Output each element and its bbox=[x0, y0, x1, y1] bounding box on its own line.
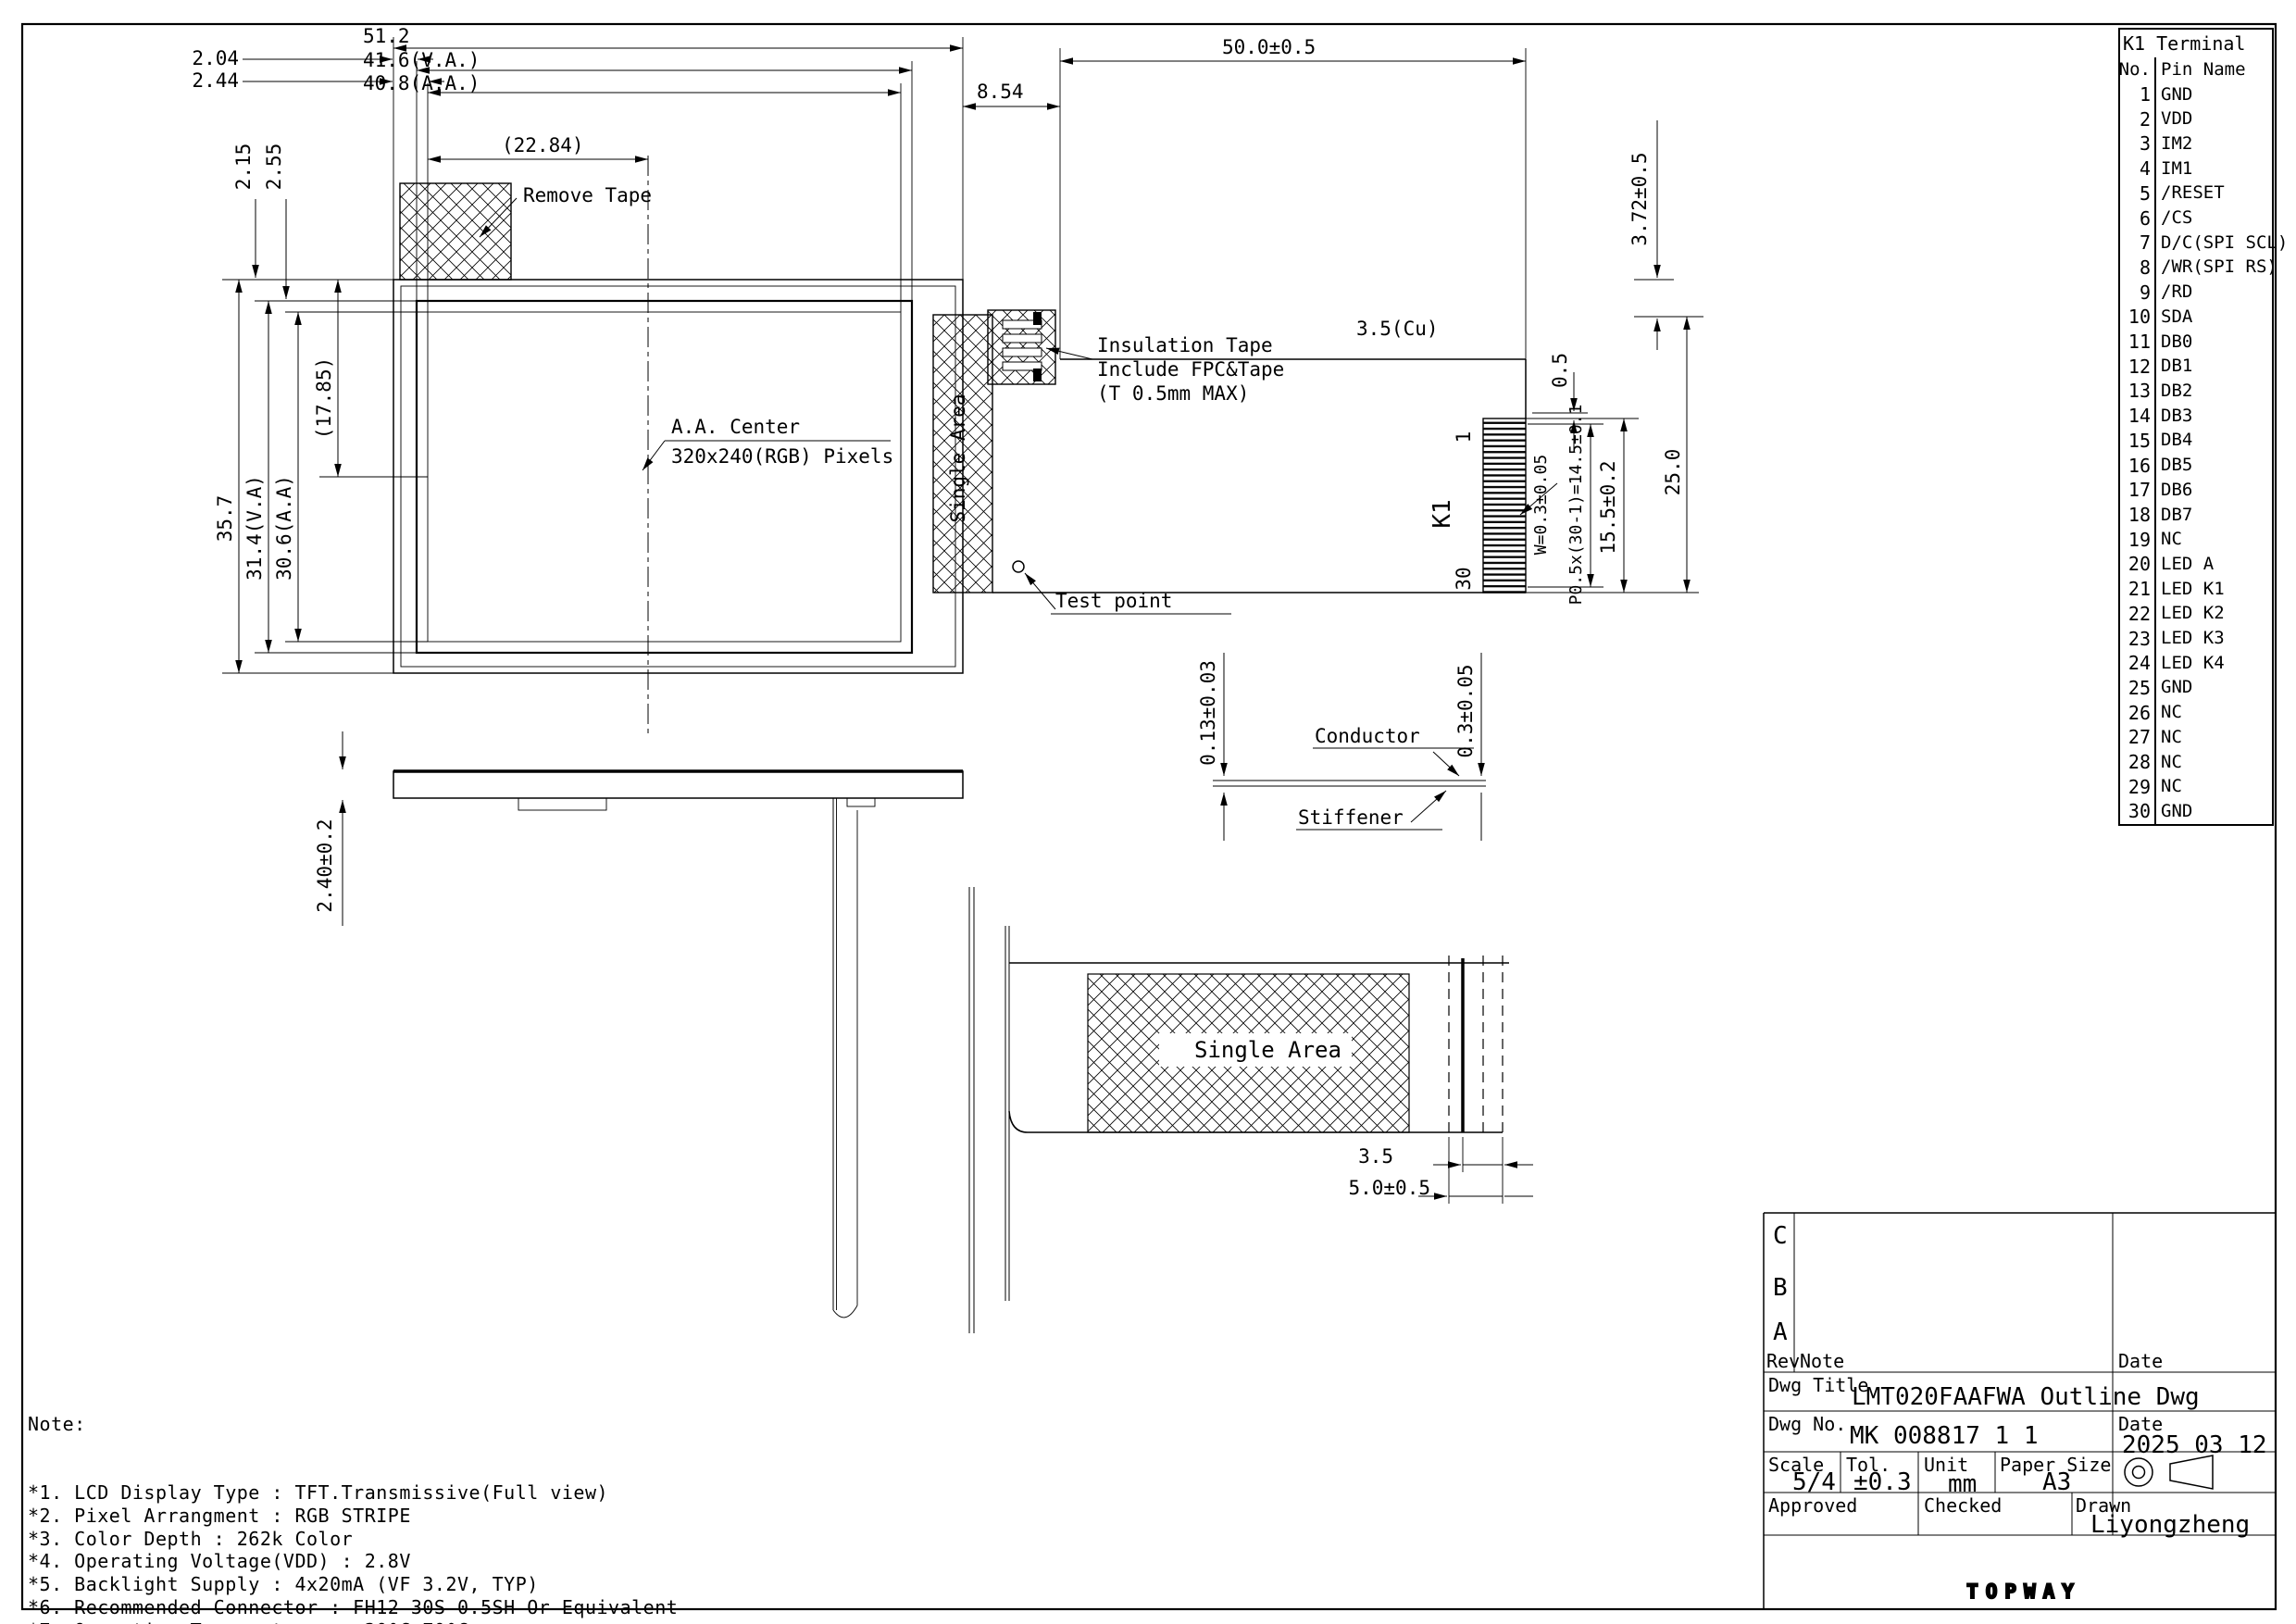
pin-table-col-no: No. bbox=[2120, 57, 2156, 82]
dim-2-40: 2.40±0.2 bbox=[314, 818, 336, 912]
note-col-label: Note bbox=[1800, 1352, 1844, 1370]
pin-table-header: No. Pin Name bbox=[2120, 57, 2272, 82]
pin-table: K1 Terminal No. Pin Name 1GND2VDD3IM24IM… bbox=[2118, 28, 2274, 826]
single-area-label: Single Area bbox=[947, 394, 969, 522]
pin-row: 27NC bbox=[2120, 725, 2272, 750]
connector-pin-1: 1 bbox=[1453, 431, 1475, 443]
note-line: *1. LCD Display Type : TFT.Transmissive(… bbox=[28, 1481, 678, 1505]
pin-row: 21LED K1 bbox=[2120, 577, 2272, 602]
third-angle-projection-icon bbox=[2125, 1458, 2152, 1486]
pin-row: 15DB4 bbox=[2120, 429, 2272, 454]
pin-row: 8/WR(SPI RS) bbox=[2120, 256, 2272, 281]
pin-row: 2VDD bbox=[2120, 106, 2272, 131]
aa-center-label-1: A.A. Center bbox=[671, 416, 800, 438]
drawn-by-value: Liyongzheng bbox=[2090, 1513, 2250, 1537]
dim-35-7: 35.7 bbox=[214, 495, 236, 543]
conductor-label: Conductor bbox=[1315, 725, 1420, 747]
pin-table-title: K1 Terminal bbox=[2120, 30, 2272, 57]
dim-pitch: P0.5x(30-1)=14.5±0.1 bbox=[1566, 405, 1586, 606]
pin-row: 18DB7 bbox=[2120, 503, 2272, 528]
pin-row: 4IM1 bbox=[2120, 156, 2272, 181]
rev-c: C bbox=[1773, 1224, 1788, 1248]
dim-41-6: 41.6(V.A.) bbox=[363, 49, 480, 71]
connector-fingers bbox=[1483, 418, 1526, 593]
dim-15-5: 15.5±0.2 bbox=[1597, 460, 1619, 554]
scale-value: 5/4 bbox=[1792, 1470, 1836, 1494]
module-outline bbox=[393, 280, 963, 673]
pin-row: 24LED K4 bbox=[2120, 651, 2272, 676]
pin-row: 19NC bbox=[2120, 527, 2272, 552]
projection-cone-icon bbox=[2170, 1455, 2213, 1489]
insulation-label-3: (T 0.5mm MAX) bbox=[1097, 382, 1249, 405]
pin-row: 14DB3 bbox=[2120, 404, 2272, 429]
pin-row: 20LED A bbox=[2120, 552, 2272, 577]
pin-row: 1GND bbox=[2120, 82, 2272, 107]
dwg-title-value: LMT020FAAFWA Outline Dwg bbox=[1852, 1385, 2200, 1409]
insulation-label-2: Include FPC&Tape bbox=[1097, 358, 1284, 381]
insulation-label-1: Insulation Tape bbox=[1097, 334, 1273, 356]
dim-40-8: 40.8(A.A.) bbox=[363, 72, 480, 94]
dim-8-54: 8.54 bbox=[977, 81, 1024, 103]
dwg-no-label: Dwg No. bbox=[1768, 1415, 1846, 1433]
pin-row: 25GND bbox=[2120, 676, 2272, 701]
unit-value: mm bbox=[1948, 1472, 1977, 1496]
pin-row: 6/CS bbox=[2120, 206, 2272, 231]
paper-size-value: A3 bbox=[2042, 1470, 2071, 1494]
date-label-2: Date bbox=[2118, 1415, 2163, 1433]
test-point-circle bbox=[1013, 561, 1024, 572]
pin-row: 26NC bbox=[2120, 700, 2272, 725]
pin-row: 23LED K3 bbox=[2120, 626, 2272, 651]
approved-label: Approved bbox=[1768, 1496, 1857, 1515]
pin-row: 13DB2 bbox=[2120, 379, 2272, 404]
pin-row: 7D/C(SPI SCL) bbox=[2120, 231, 2272, 256]
dim-22-84: (22.84) bbox=[502, 134, 584, 156]
pin-row: 3IM2 bbox=[2120, 131, 2272, 156]
display-frame bbox=[417, 301, 912, 653]
dim-0-3: 0.3±0.05 bbox=[1454, 664, 1477, 757]
topway-logo: TOPWAY bbox=[1966, 1580, 2081, 1603]
dim-50-0: 50.0±0.5 bbox=[1222, 36, 1316, 58]
pin-row: 30GND bbox=[2120, 799, 2272, 824]
aa-center-label-2: 320x240(RGB) Pixels bbox=[671, 445, 893, 468]
dim-2-04: 2.04 bbox=[192, 47, 239, 69]
date-col-label: Date bbox=[2118, 1352, 2163, 1370]
note-line: *2. Pixel Arrangment : RGB STRIPE bbox=[28, 1505, 678, 1528]
pin-row: 10SDA bbox=[2120, 305, 2272, 330]
rev-label: Rev bbox=[1766, 1352, 1800, 1370]
stiffener-label: Stiffener bbox=[1298, 806, 1404, 829]
side-view-body bbox=[393, 771, 963, 798]
rev-b: B bbox=[1773, 1276, 1788, 1300]
tol-value: ±0.3 bbox=[1853, 1470, 1912, 1494]
dim-2-44: 2.44 bbox=[192, 69, 239, 92]
rev-a: A bbox=[1773, 1320, 1788, 1344]
dim-0-5: 0.5 bbox=[1549, 353, 1571, 388]
note-line: *5. Backlight Supply : 4x20mA (VF 3.2V, … bbox=[28, 1573, 678, 1596]
dim-3-72: 3.72±0.5 bbox=[1628, 152, 1651, 245]
dim-5-0: 5.0±0.5 bbox=[1348, 1177, 1430, 1199]
dwg-no-value: MK 008817 1 1 bbox=[1850, 1424, 2039, 1448]
pin-row: 28NC bbox=[2120, 750, 2272, 775]
notes-block: Note: *1. LCD Display Type : TFT.Transmi… bbox=[28, 1367, 678, 1624]
test-point-label: Test point bbox=[1055, 590, 1172, 612]
module-inner-line bbox=[401, 286, 955, 667]
connector-pin-30: 30 bbox=[1453, 567, 1475, 590]
pin-row: 22LED K2 bbox=[2120, 601, 2272, 626]
notes-heading: Note: bbox=[28, 1413, 678, 1436]
dim-25-0: 25.0 bbox=[1662, 449, 1684, 496]
dim-30-6: 30.6(A.A) bbox=[273, 475, 295, 581]
pin-row: 16DB5 bbox=[2120, 453, 2272, 478]
note-line: *6. Recommended Connector : FH12 30S 0.5… bbox=[28, 1596, 678, 1619]
connector-name: K1 bbox=[1429, 499, 1456, 528]
dim-17-85: (17.85) bbox=[313, 357, 335, 440]
pin-row: 9/RD bbox=[2120, 280, 2272, 305]
note-line: *4. Operating Voltage(VDD) : 2.8V bbox=[28, 1550, 678, 1573]
remove-tape-label: Remove Tape bbox=[523, 184, 652, 206]
dim-2-15: 2.15 bbox=[232, 144, 255, 191]
pin-row: 17DB6 bbox=[2120, 478, 2272, 503]
pin-row: 29NC bbox=[2120, 774, 2272, 799]
dim-3-5: 3.5 bbox=[1358, 1145, 1393, 1168]
pin-row: 11DB0 bbox=[2120, 330, 2272, 355]
side-view-tab-1 bbox=[518, 798, 606, 810]
side-view-tab-2 bbox=[847, 798, 875, 806]
aa-center-leader bbox=[643, 441, 665, 470]
pin-row: 5/RESET bbox=[2120, 181, 2272, 206]
drawing-sheet: 51.2 41.6(V.A.) 40.8(A.A.) 2.04 2.44 (22… bbox=[0, 0, 2296, 1624]
dim-51-2: 51.2 bbox=[363, 25, 410, 47]
date-value: 2025 03 12 bbox=[2122, 1433, 2267, 1457]
note-line: *7. Operating Temperature : 20°C~70°C bbox=[28, 1619, 678, 1624]
single-area-bottom-label: Single Area bbox=[1194, 1037, 1341, 1063]
dim-31-4: 31.4(V.A) bbox=[243, 475, 266, 581]
pin-table-col-name: Pin Name bbox=[2156, 61, 2246, 79]
note-line: *3. Color Depth : 262k Color bbox=[28, 1528, 678, 1551]
pin-row: 12DB1 bbox=[2120, 354, 2272, 379]
dim-0-13: 0.13±0.03 bbox=[1197, 660, 1219, 766]
dim-2-55: 2.55 bbox=[263, 144, 285, 191]
active-area bbox=[428, 312, 901, 642]
dim-3-5-cu: 3.5(Cu) bbox=[1356, 318, 1439, 340]
checked-label: Checked bbox=[1924, 1496, 2002, 1515]
dim-w: W=0.3±0.05 bbox=[1531, 455, 1551, 555]
